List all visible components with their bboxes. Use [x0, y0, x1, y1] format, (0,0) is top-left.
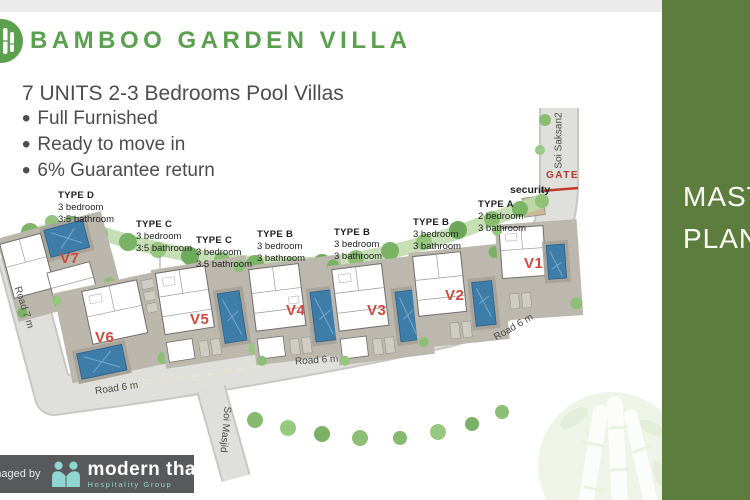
master-plan-slide: BAMBOO GARDEN VILLA 7 UNITS 2-3 Bedrooms…	[0, 0, 750, 500]
villa-type-label-v5: TYPE C 3 bedroom 3.5 bathroom	[196, 235, 252, 271]
villa-marker-v3: V3	[367, 302, 386, 319]
modernthai-logo-icon	[50, 461, 82, 487]
modernthai-subtitle: Hospitality Group	[88, 481, 202, 489]
villa-type-label-v7: TYPE D 3 bedroom 3:5 bathroom	[58, 190, 114, 226]
master-plan-title: MASTER PLAN	[683, 176, 750, 260]
road-label-soi-saksan2: Soi Saksan2	[554, 109, 565, 173]
tagline: 7 UNITS 2-3 Bedrooms Pool Villas	[22, 82, 344, 106]
villa-type-label-v3: TYPE B 3 bedroom 3 bathroom	[334, 227, 382, 263]
brand-title: BAMBOO GARDEN VILLA	[30, 27, 412, 55]
feature-bullet: Ready to move in	[22, 132, 215, 158]
gate-label: GATE	[546, 170, 579, 181]
villa-marker-v4: V4	[286, 302, 305, 319]
security-label: security	[510, 184, 550, 196]
villa-type-label-v1: TYPE A 2 bedroom 3 bathroom	[478, 199, 526, 235]
villa-marker-v6: V6	[95, 329, 114, 346]
villa-marker-v5: V5	[190, 311, 209, 328]
villa-type-label-v6: TYPE C 3 bedroom 3:5 bathroom	[136, 219, 192, 255]
feature-list: Full Furnished Ready to move in 6% Guara…	[22, 106, 215, 184]
footer-bar: managed by modern thai Hospitality Group	[0, 455, 194, 493]
side-panel: MASTER PLAN	[662, 0, 750, 500]
modernthai-name: modern thai	[88, 460, 202, 479]
villa-type-label-v4: TYPE B 3 bedroom 3 bathroom	[257, 229, 305, 265]
villa-marker-v7: V7	[60, 250, 79, 267]
villa-marker-v2: V2	[445, 287, 464, 304]
brand-bamboo-logo-icon	[0, 18, 24, 64]
managed-by-label: managed by	[0, 468, 41, 480]
feature-bullet: 6% Guarantee return	[22, 158, 215, 184]
villa-marker-v1: V1	[524, 255, 543, 272]
villa-type-label-v2: TYPE B 3 bedroom 3 bathroom	[413, 217, 461, 253]
feature-bullet: Full Furnished	[22, 106, 215, 132]
